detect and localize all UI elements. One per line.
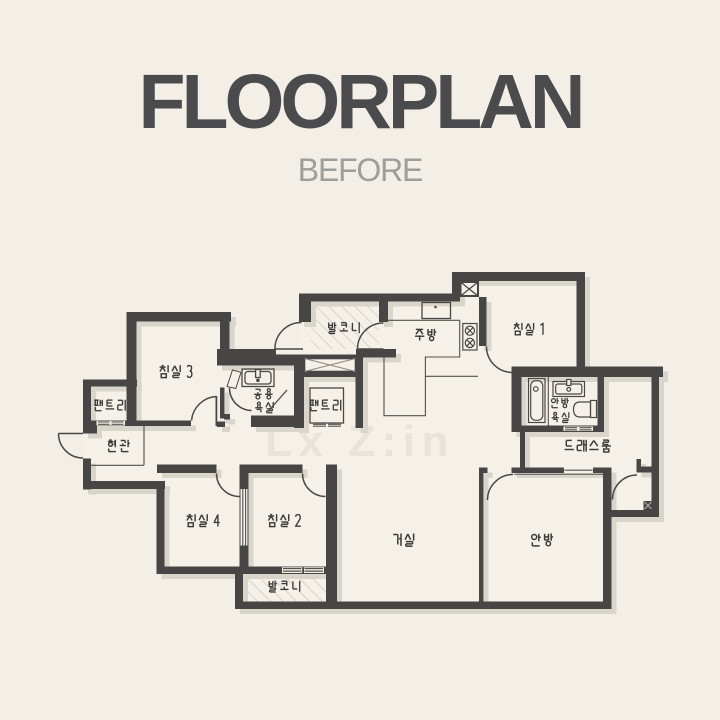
svg-text:FLOORPLAN: FLOORPLAN [138,59,581,145]
svg-text:BEFORE: BEFORE [298,152,422,188]
